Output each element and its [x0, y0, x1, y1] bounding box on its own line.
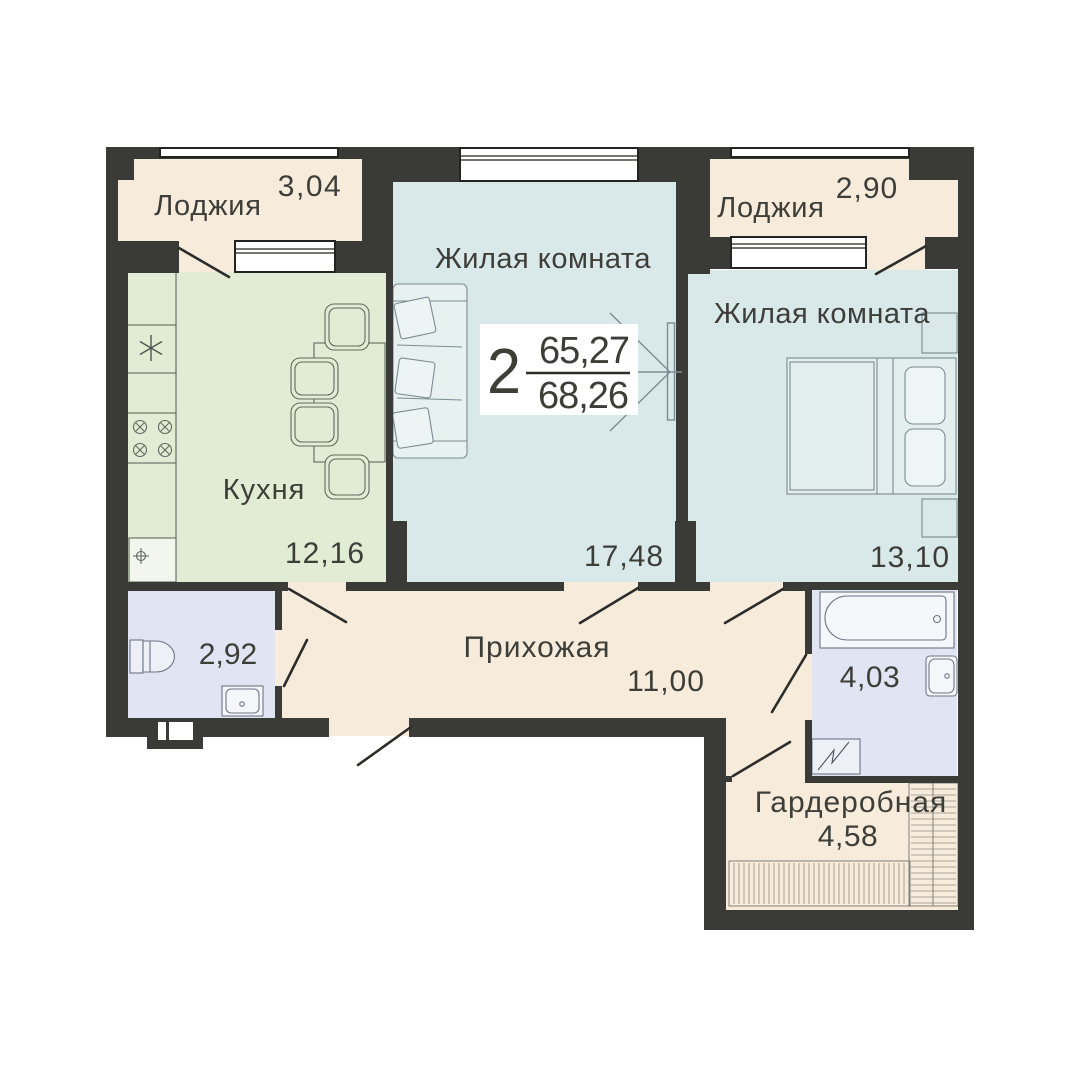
svg-text:2,92: 2,92 [199, 638, 257, 671]
svg-text:11,00: 11,00 [627, 665, 705, 698]
svg-text:Лоджия: Лоджия [717, 192, 825, 224]
svg-text:Прихожая: Прихожая [463, 631, 610, 664]
svg-text:3,04: 3,04 [278, 170, 342, 203]
svg-text:65,27: 65,27 [539, 330, 629, 372]
svg-text:17,48: 17,48 [584, 540, 664, 573]
svg-text:13,10: 13,10 [870, 541, 950, 574]
svg-text:68,26: 68,26 [538, 375, 628, 417]
svg-text:Лоджия: Лоджия [154, 190, 262, 222]
svg-text:Жилая комната: Жилая комната [435, 243, 651, 275]
svg-text:Кухня: Кухня [223, 474, 306, 506]
svg-text:2,90: 2,90 [836, 172, 898, 205]
svg-text:2: 2 [487, 335, 521, 407]
svg-text:12,16: 12,16 [285, 537, 365, 570]
svg-text:Жилая комната: Жилая комната [714, 298, 930, 330]
svg-text:4,03: 4,03 [840, 661, 900, 694]
svg-text:Гардеробная: Гардеробная [755, 786, 947, 819]
svg-text:4,58: 4,58 [818, 820, 878, 853]
